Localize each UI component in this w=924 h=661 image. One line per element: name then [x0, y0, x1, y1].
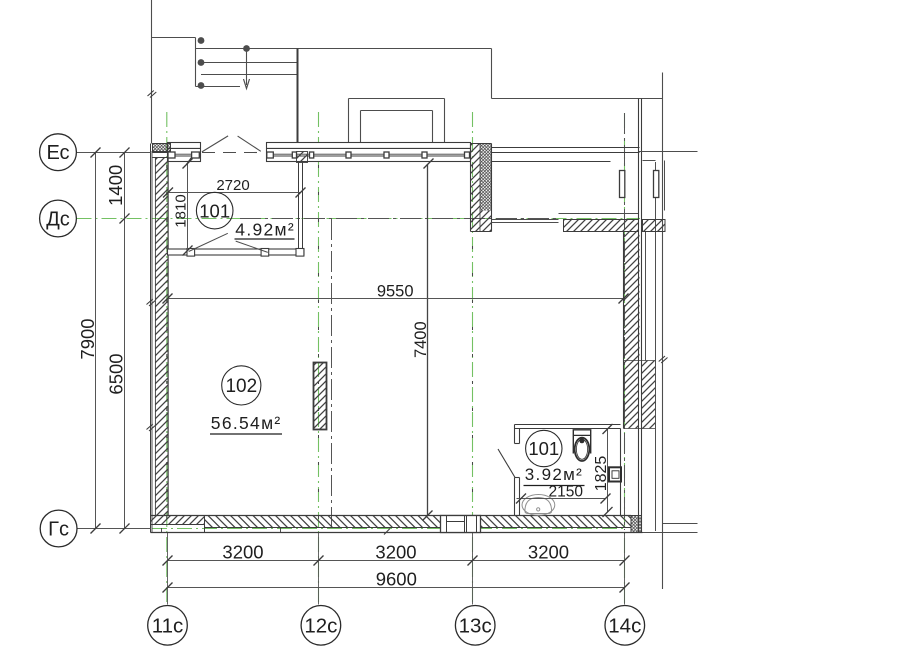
- svg-text:3.92м²: 3.92м²: [525, 465, 583, 484]
- svg-text:1825: 1825: [593, 456, 610, 492]
- svg-text:12с: 12с: [304, 614, 337, 637]
- svg-text:13с: 13с: [459, 614, 492, 637]
- svg-text:Гс: Гс: [48, 519, 69, 541]
- svg-text:101: 101: [199, 200, 230, 221]
- svg-text:4.92м²: 4.92м²: [235, 220, 295, 240]
- svg-text:Дс: Дс: [46, 209, 70, 231]
- svg-text:56.54м²: 56.54м²: [211, 413, 282, 433]
- svg-text:7400: 7400: [412, 321, 430, 358]
- svg-text:7900: 7900: [77, 318, 98, 359]
- svg-text:101: 101: [528, 438, 559, 459]
- svg-text:6500: 6500: [106, 353, 127, 394]
- svg-text:1400: 1400: [105, 165, 126, 206]
- svg-text:2720: 2720: [216, 177, 249, 194]
- svg-text:1810: 1810: [173, 194, 190, 227]
- svg-text:3200: 3200: [528, 542, 569, 563]
- svg-text:3200: 3200: [222, 542, 263, 563]
- svg-text:102: 102: [225, 376, 257, 397]
- svg-text:11с: 11с: [152, 614, 184, 637]
- svg-text:Ес: Ес: [46, 142, 69, 164]
- svg-text:14с: 14с: [608, 614, 641, 637]
- svg-text:3200: 3200: [375, 542, 416, 563]
- svg-text:9550: 9550: [377, 283, 414, 301]
- svg-text:9600: 9600: [376, 569, 417, 590]
